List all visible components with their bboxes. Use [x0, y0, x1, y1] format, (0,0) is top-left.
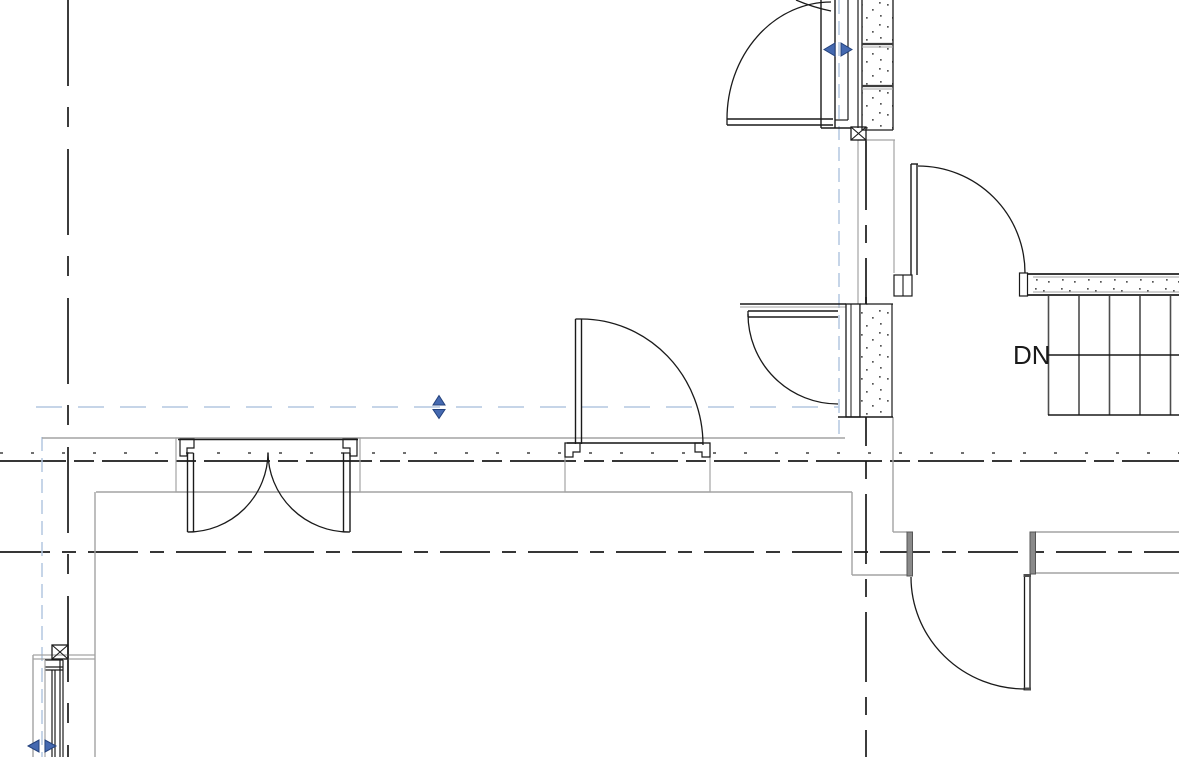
framing-x-symbol [52, 645, 68, 659]
walls-halftone[interactable] [33, 140, 1179, 757]
door-bottom-left[interactable] [45, 645, 68, 757]
grid-lines [0, 0, 1179, 757]
double-door[interactable] [178, 439, 358, 532]
flip-down-arrow-icon [433, 410, 445, 419]
door-jamb-right [1030, 532, 1036, 574]
door-swing-arc [582, 319, 704, 445]
door-middle[interactable] [565, 319, 710, 457]
floor-plan-canvas: DN [0, 0, 1179, 757]
door-frame-panel [846, 304, 860, 417]
flip-left-arrow-icon [824, 43, 835, 56]
door-right-wall[interactable] [740, 304, 893, 417]
wall-stipple-texture [862, 0, 893, 130]
wall-hatched-stair-head[interactable] [1020, 273, 1179, 296]
floor-plan-drawing: DN [0, 0, 1179, 757]
door-swing-arc [918, 166, 1025, 273]
flip-right-arrow-icon [841, 43, 852, 56]
flip-right-arrow-icon [45, 740, 56, 752]
wall-end-cap [1020, 273, 1028, 296]
door-bottom-right[interactable] [907, 532, 1036, 691]
door-swing-arc [911, 577, 1025, 689]
door-upper-right[interactable] [894, 164, 1025, 296]
door-swing-arc [727, 2, 831, 119]
door-top[interactable] [727, 0, 866, 140]
door-swing-arc [748, 314, 838, 404]
wall-hatched-top[interactable] [862, 0, 893, 130]
flip-up-arrow-icon [433, 396, 445, 406]
stairs[interactable]: DN [1013, 296, 1179, 415]
door-jamb-right [695, 443, 710, 457]
door-jamb-left [565, 443, 580, 457]
stair-direction-label: DN [1013, 340, 1051, 370]
reference-planes [36, 0, 839, 757]
framing-x-symbol [851, 127, 866, 140]
opening-box-double-door [176, 438, 360, 492]
door-leaf-top-cap [1024, 574, 1032, 577]
wall-stipple-texture [1027, 273, 1179, 296]
wall-stipple-texture [860, 304, 892, 417]
door-jamb-left [907, 532, 913, 576]
opening-box-middle-door [565, 443, 710, 492]
